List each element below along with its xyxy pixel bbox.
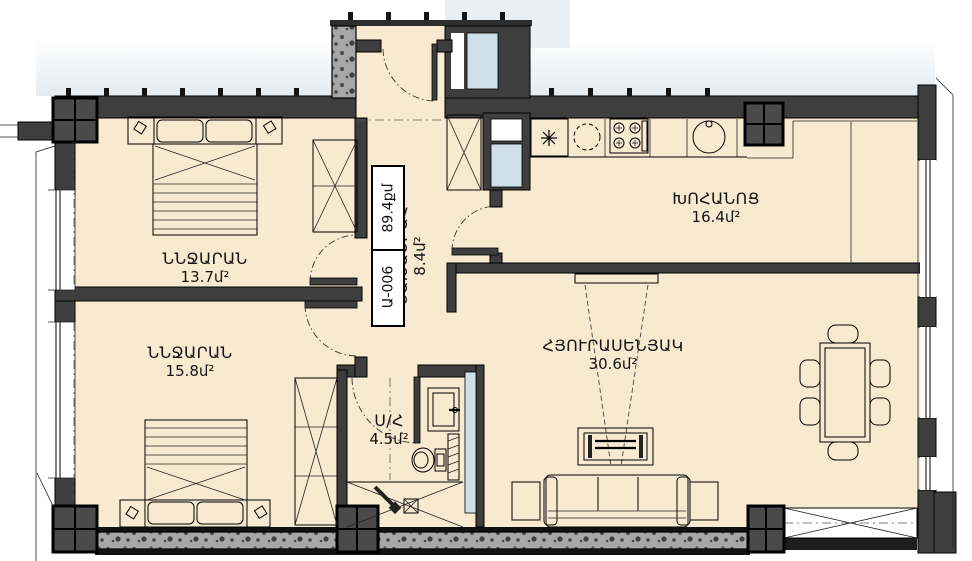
unit-code: Ա-006 [380,266,396,309]
room-label-bedroom2: ՆՆՋԱՐԱՆ 15.8մ² [90,343,290,381]
window-left-bedroom1 [46,190,75,290]
unit-code-cell: Ա-006 [373,251,403,323]
window-right-living [918,457,936,490]
room-label-bedroom1: ՆՆՋԱՐԱՆ 13.7մ² [105,249,305,287]
room-area: 8.4մ² [411,196,430,316]
unit-label-box: 89.4քմ Ա-006 [371,165,405,327]
room-name: ՀՅՈՒՐԱՍԵՆՅԱԿ [488,336,738,355]
column-bathroom [337,506,378,552]
room-area: 13.7մ² [105,268,305,287]
column-bottom-left [53,506,97,552]
window-right-kitchen [918,160,936,297]
room-name: ԽՈՀԱՆՈՑ [616,189,816,208]
room-name: ՆՆՋԱՐԱՆ [90,343,290,362]
room-area: 30.6մ² [488,355,738,374]
room-name: Ս/Հ [339,411,439,430]
bathroom-duct [465,372,476,513]
column-top-left [53,98,97,142]
room-area: 4.5մ² [339,430,439,449]
room-area: 16.4մ² [616,208,816,227]
room-label-bathroom: Ս/Հ 4.5մ² [339,411,439,449]
column-bottom-living [748,506,784,552]
room-name: ՆՆՋԱՐԱՆ [105,249,305,268]
room-label-living: ՀՅՈՒՐԱՍԵՆՅԱԿ 30.6մ² [488,336,738,374]
window-left-bedroom2 [46,322,75,478]
balcony-glazing [784,508,917,538]
room-area: 15.8մ² [90,362,290,381]
vestibule-concrete-pier [332,26,356,98]
column-kitchen [745,103,783,145]
floor-plan: ՆՆՋԱՐԱՆ 13.7մ² ՆՆՋԱՐԱՆ 15.8մ² ԽՈՀԱՆՈՑ 16… [0,0,972,561]
window-right-dining [918,327,936,418]
unit-total-area-cell: 89.4քմ [373,167,403,251]
unit-total-area: 89.4քմ [380,184,396,233]
room-label-kitchen: ԽՈՀԱՆՈՑ 16.4մ² [616,189,816,227]
service-shaft [483,113,530,190]
snowflake-icon [541,130,557,146]
